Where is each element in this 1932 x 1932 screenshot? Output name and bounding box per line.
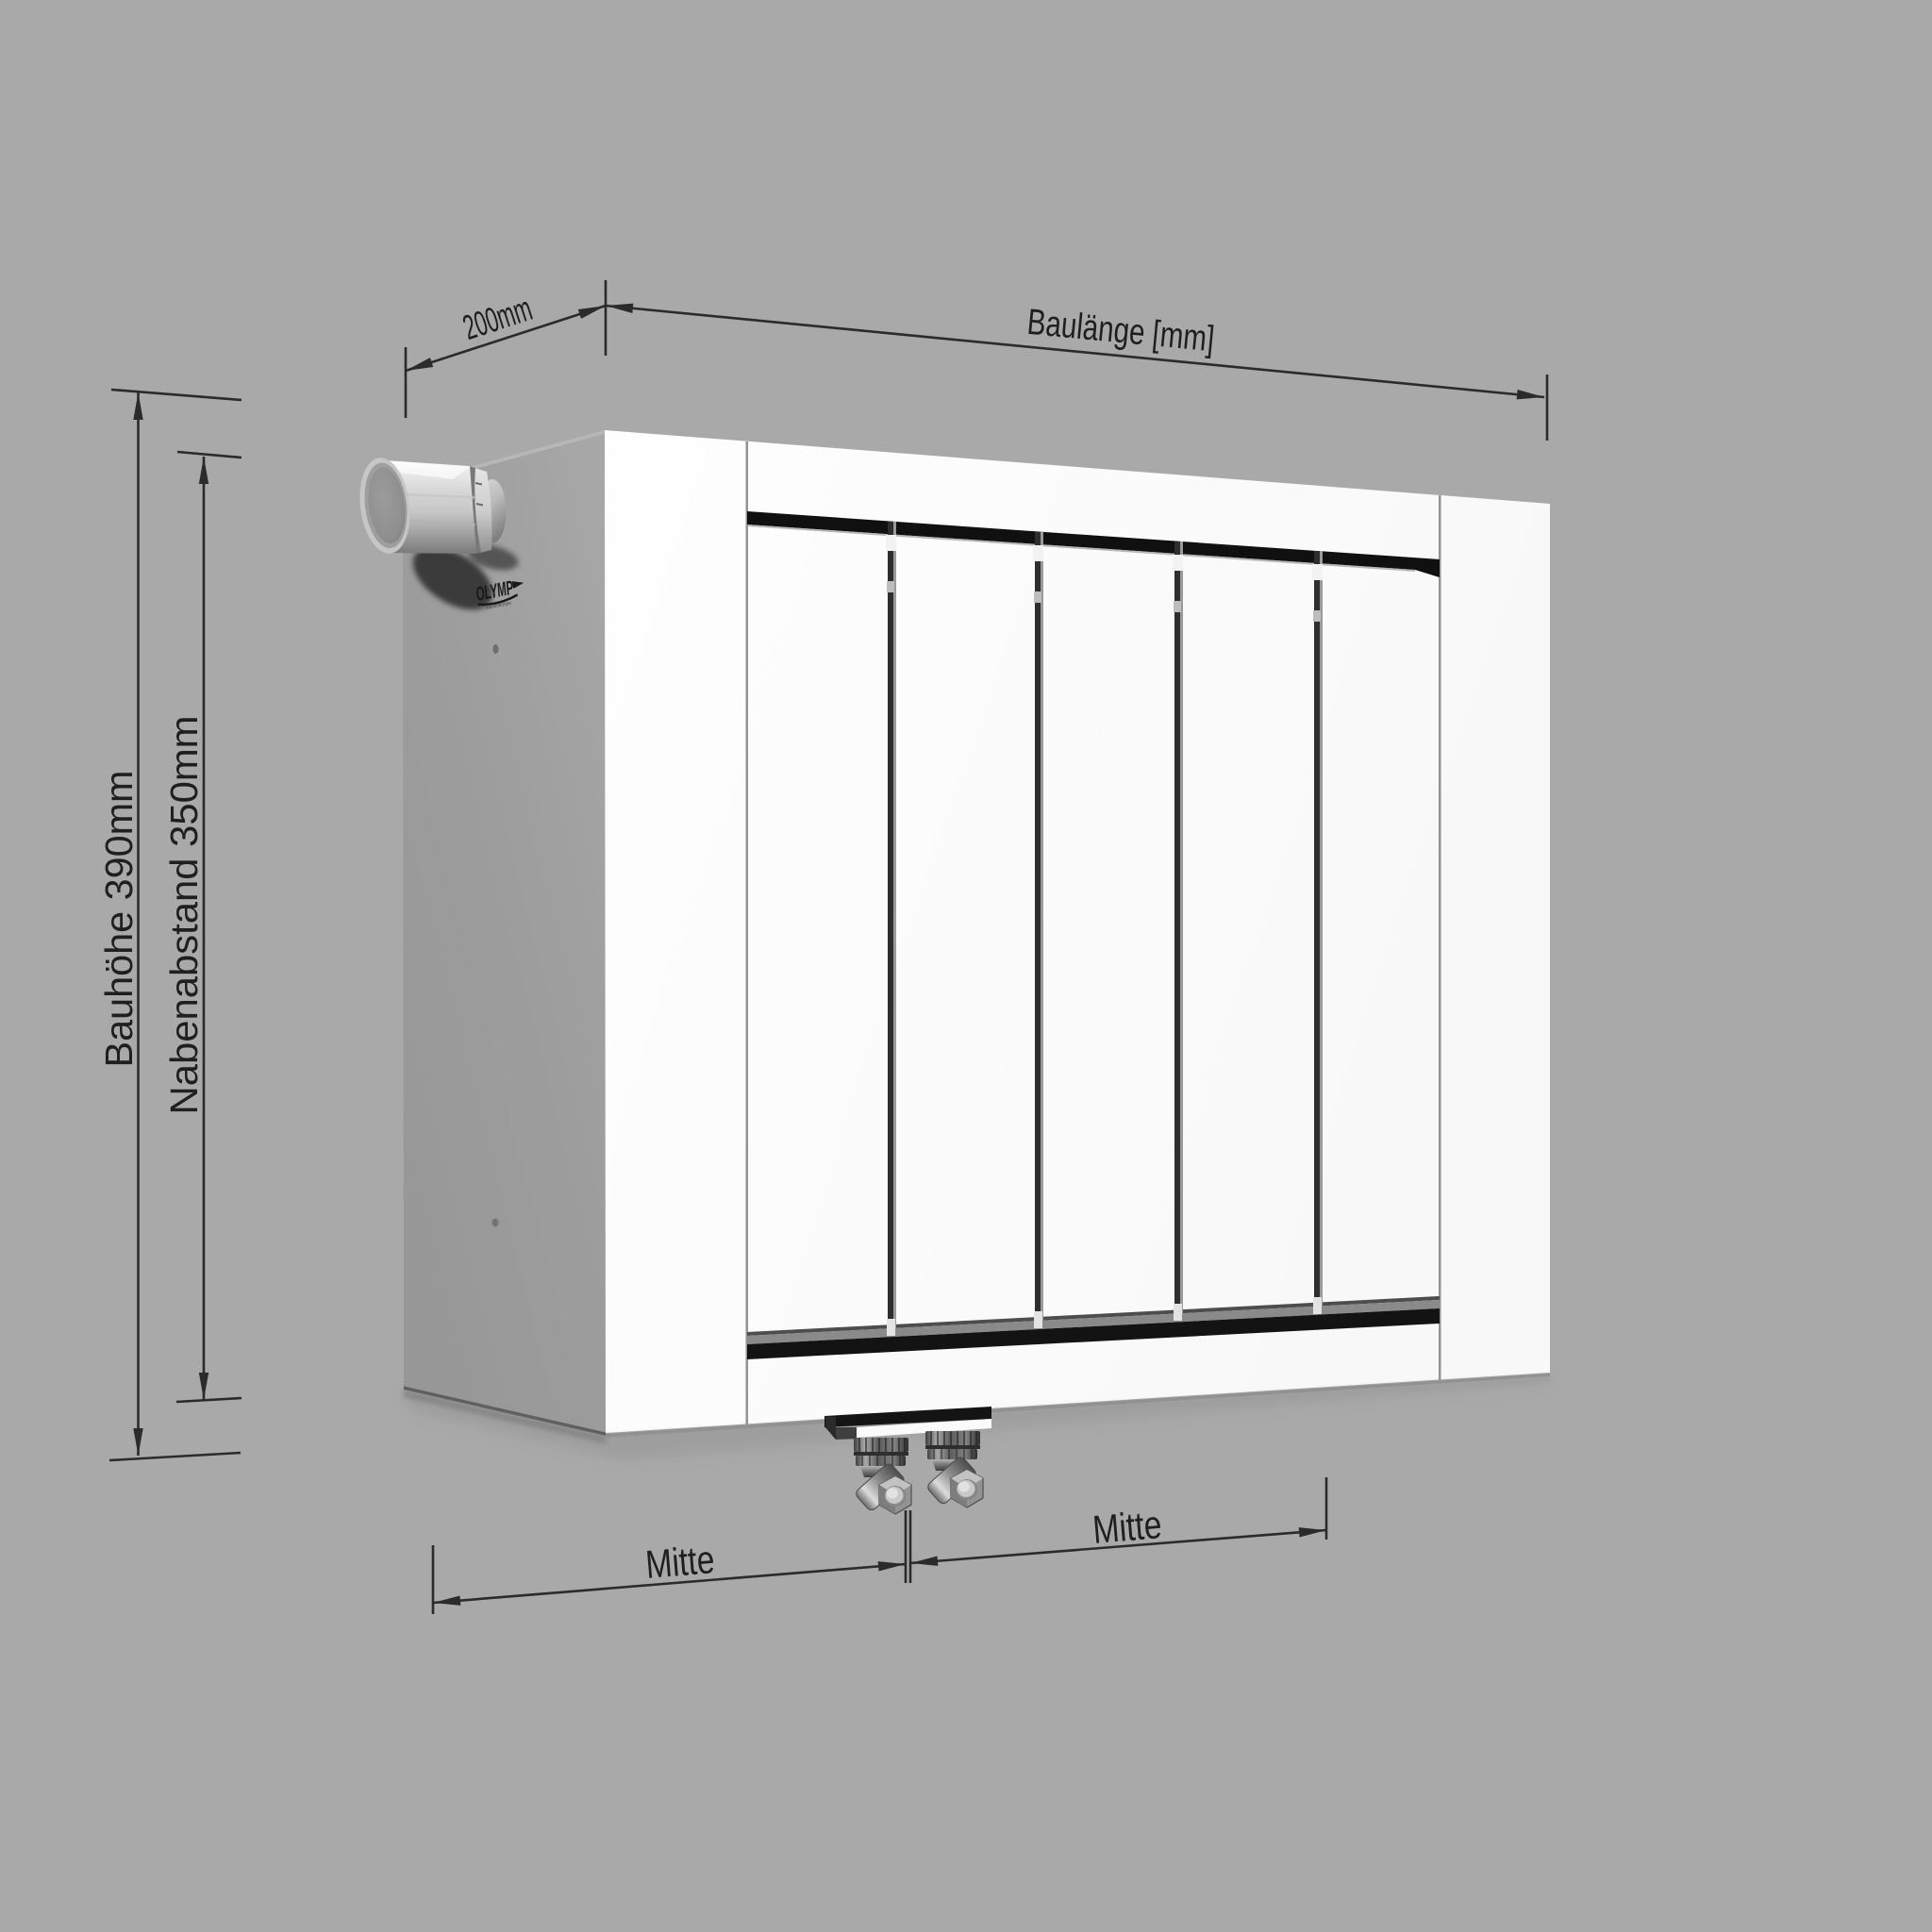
svg-text:Bauhöhe 390mm: Bauhöhe 390mm	[97, 771, 141, 1068]
svg-text:Mitte: Mitte	[1091, 1502, 1164, 1552]
svg-text:Nabenabstand 350mm: Nabenabstand 350mm	[162, 716, 206, 1115]
svg-text:Mitte: Mitte	[644, 1537, 717, 1587]
